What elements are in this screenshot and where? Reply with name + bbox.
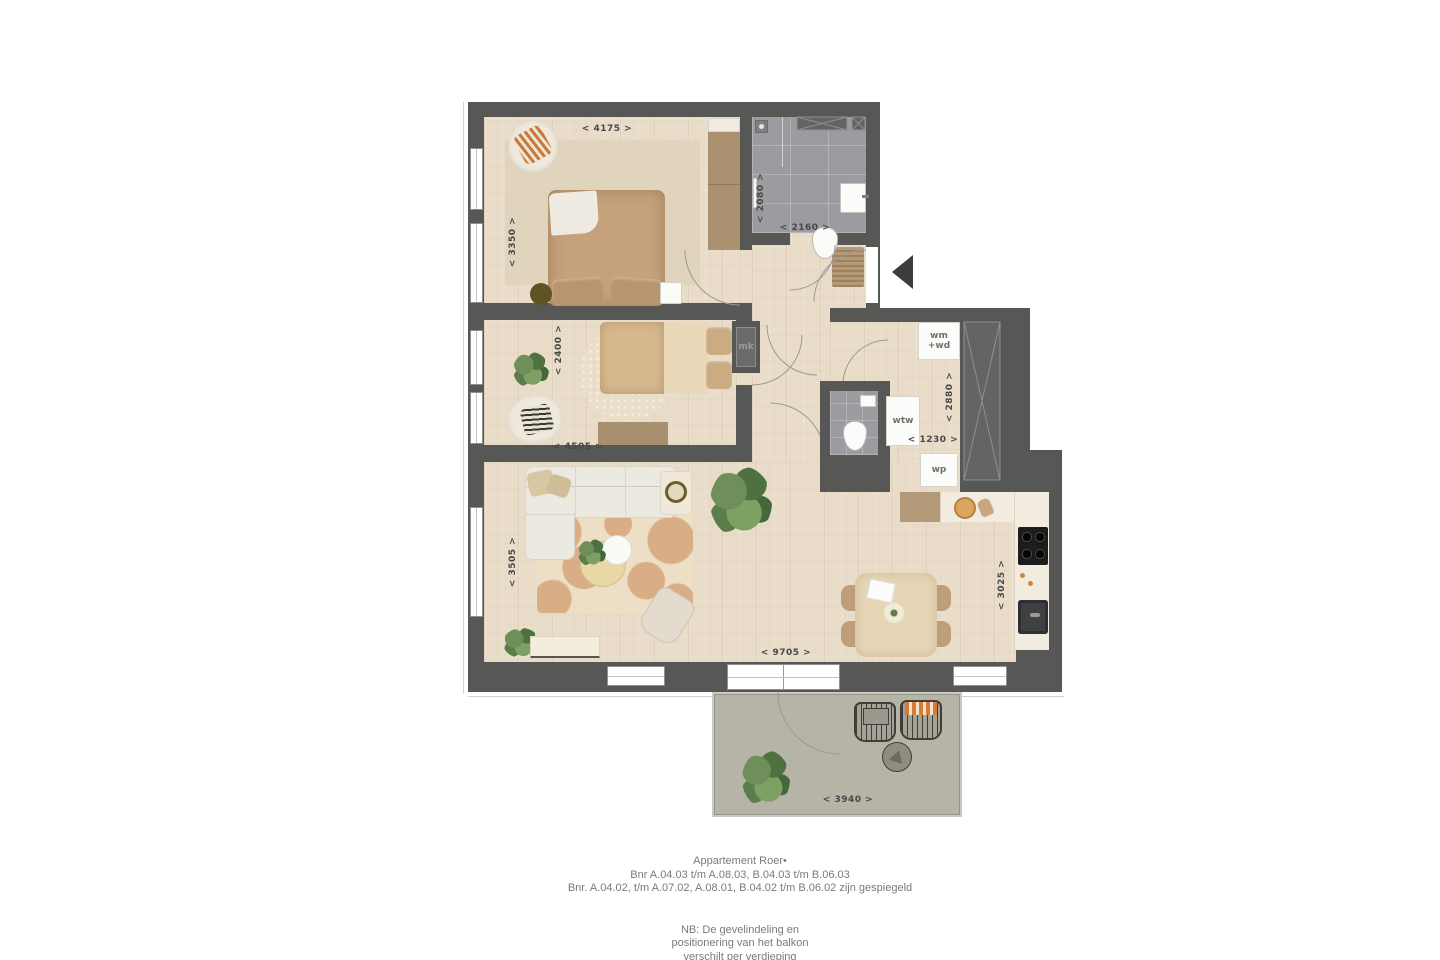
mirrored-units-line: Bnr. A.04.02, t/m A.07.02, A.08.01, B.04…: [420, 882, 1060, 896]
shaft-wall-block: [960, 310, 1030, 492]
dim-bedroom1-height: < 3350 >: [508, 217, 518, 267]
note-line-3: verschilt per verdieping: [420, 951, 1060, 960]
balcony-table: [882, 742, 912, 772]
dim-balcony-width: < 3940 >: [823, 795, 873, 805]
bedroom2-window-2: [470, 392, 483, 444]
table-bowl: [884, 603, 904, 623]
living-window-bottom: [607, 666, 665, 686]
heat-pump-label: wp: [932, 465, 947, 475]
kitchen-tall-cabinet: [900, 492, 940, 522]
wc-shelf: [860, 395, 876, 407]
dim-bedroom2-width: < 4505 >: [553, 442, 603, 452]
heat-recovery-label: wtw: [893, 416, 914, 426]
balcony-chair-1: [854, 702, 896, 742]
balcony-plant: [742, 750, 790, 808]
apartment-title: Appartement Roer•: [420, 855, 1060, 869]
bedroom2-plant: [513, 352, 549, 388]
dining-chair-3: [935, 585, 951, 611]
sofa-chaise: [525, 514, 575, 560]
dim-bathroom-height: < 2080 >: [756, 173, 766, 223]
kitchen-sink: [1018, 600, 1048, 634]
bedroom1-nightstand: [660, 282, 682, 304]
balcony-chair2-cushion: [905, 702, 937, 715]
bedroom2-bed: [600, 322, 734, 394]
meter-cupboard: mk: [732, 321, 760, 373]
facade-line-left: [463, 102, 464, 694]
corridor-floor: [752, 308, 830, 480]
living-window-left: [470, 507, 483, 617]
cooktop: [1018, 527, 1048, 565]
entrance-door-opening: [866, 247, 878, 303]
bathroom-floor: [752, 117, 866, 233]
dim-tech-height: < 2880 >: [945, 372, 955, 422]
side-table-tray: [665, 481, 687, 503]
dining-chair-4: [935, 621, 951, 647]
balcony-chair1-seat: [863, 708, 889, 725]
fruit-decor-1: [1020, 573, 1025, 578]
floorplan-page: mk wm +wd wtw wp: [0, 0, 1440, 960]
dim-bathroom-width: < 2160 >: [780, 223, 830, 233]
dim-living-height: < 3505 >: [508, 537, 518, 587]
sink-faucet-icon: [862, 195, 869, 198]
bedroom1-window-2: [470, 223, 483, 303]
floor-plan: mk wm +wd wtw wp: [460, 95, 1080, 830]
bedroom2-dresser: [598, 422, 668, 445]
bed-sheet-fold: [549, 190, 600, 235]
fruit-decor-2: [1028, 581, 1033, 586]
kitchen-window-bottom: [953, 666, 1007, 686]
bedroom1-door-opening: [740, 250, 752, 303]
pie-decor: [954, 497, 976, 519]
bedroom1-window-1: [470, 148, 483, 210]
bed2-duvet: [664, 322, 708, 394]
bed2-blanket: [600, 322, 664, 394]
coffee-table-plate: [602, 535, 632, 565]
bedroom2-window-1: [470, 330, 483, 385]
dim-bedroom2-height: < 2400 >: [554, 325, 564, 375]
bedroom1-wardrobe: [708, 118, 740, 250]
living-plant-large: [710, 466, 772, 538]
bedroom1-side-table: [530, 283, 552, 305]
kitchen-top-wall: [962, 480, 1062, 492]
washer-label: wm: [930, 331, 948, 341]
note-line-2: positionering van het balkon: [420, 937, 1060, 951]
coffee-table-plant: [578, 539, 606, 567]
balcony-table-pattern: [886, 746, 909, 769]
dim-tech-width: < 1230 >: [908, 435, 958, 445]
heat-pump-unit: wp: [920, 453, 958, 487]
plan-footer: Appartement Roer• Bnr A.04.03 t/m A.08.0…: [420, 855, 1060, 960]
note-line-1: NB: De gevelindeling en: [420, 924, 1060, 938]
wardrobe-shelf: [708, 118, 740, 132]
entrance-arrow-icon: [892, 255, 913, 289]
bed2-pillow-2: [706, 361, 732, 389]
bed-pillow-2: [609, 276, 663, 306]
balcony-chair-2: [900, 700, 942, 740]
shower-head-icon: [755, 120, 768, 133]
bed-pillow-1: [551, 276, 605, 306]
dryer-label: +wd: [928, 341, 950, 351]
balcony-doors: [727, 664, 840, 690]
dim-bedroom1-width: < 4175 >: [582, 124, 632, 134]
shower-screen: [782, 117, 783, 167]
kitchen-faucet-icon: [1030, 613, 1040, 617]
dim-living-width: < 9705 >: [761, 648, 811, 658]
dim-kitchen-height: < 3025 >: [997, 560, 1007, 610]
bathroom-sink: [840, 183, 866, 213]
meter-cupboard-label: mk: [736, 327, 756, 367]
sideboard: [530, 636, 600, 658]
washer-dryer-unit: wm +wd: [918, 322, 960, 360]
apartment-numbers-line: Bnr A.04.03 t/m A.08.03, B.04.03 t/m B.0…: [420, 869, 1060, 883]
doormat: [832, 247, 864, 287]
bed2-pillow-1: [706, 327, 732, 355]
